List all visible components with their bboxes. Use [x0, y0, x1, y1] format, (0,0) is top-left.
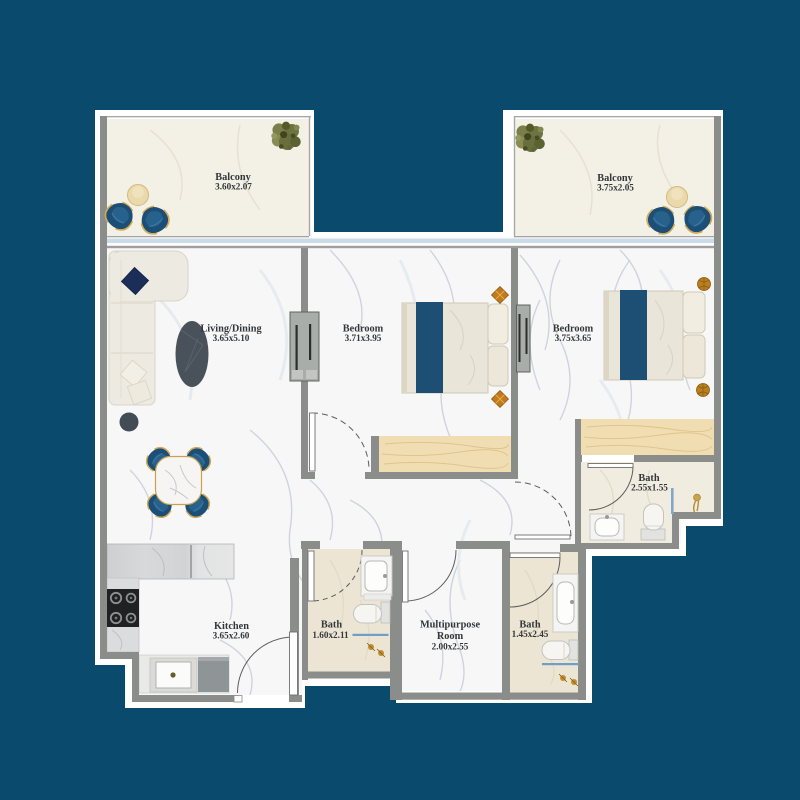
svg-text:3.71x3.95: 3.71x3.95: [345, 333, 382, 343]
svg-text:1.60x2.11: 1.60x2.11: [312, 630, 349, 640]
svg-text:2.55x1.55: 2.55x1.55: [631, 482, 668, 492]
svg-text:3.65x5.10: 3.65x5.10: [213, 333, 250, 343]
svg-text:Room: Room: [437, 631, 464, 642]
svg-text:2.00x2.55: 2.00x2.55: [432, 642, 469, 652]
svg-text:Multipurpose: Multipurpose: [420, 620, 481, 631]
svg-text:3.75x3.65: 3.75x3.65: [555, 333, 592, 343]
svg-text:3.75x2.05: 3.75x2.05: [597, 183, 634, 193]
svg-text:1.45x2.45: 1.45x2.45: [512, 629, 549, 639]
svg-text:3.60x2.07: 3.60x2.07: [215, 182, 252, 192]
svg-text:3.65x2.60: 3.65x2.60: [213, 630, 250, 640]
svg-text:Bath: Bath: [321, 620, 342, 631]
